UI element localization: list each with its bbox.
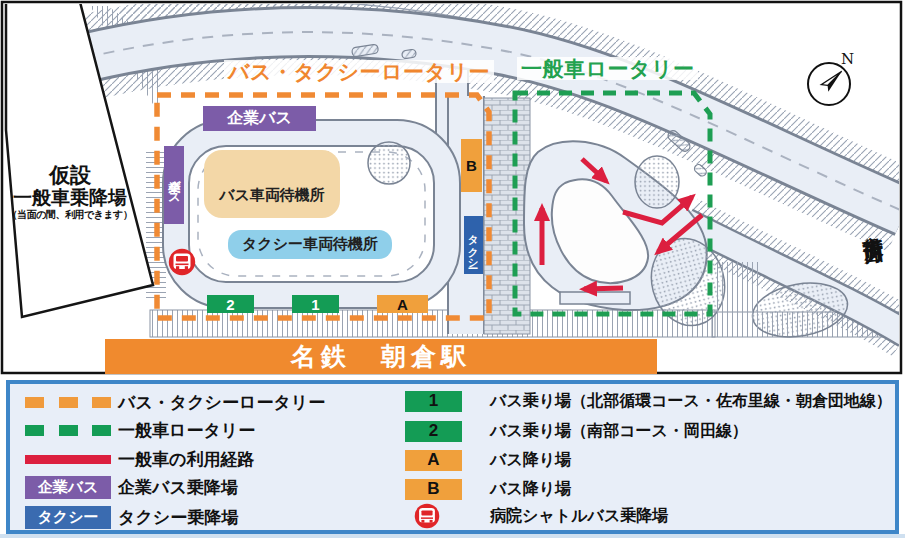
- legend-label: 一般車ロータリー: [118, 419, 255, 442]
- stop-b-marker: B: [405, 479, 462, 500]
- legend-label: バス降り場: [490, 479, 571, 500]
- corporate-bus-stop-side: 企業バス: [164, 146, 184, 224]
- bus-taxi-rotary-title: バス・タクシーロータリー: [224, 60, 494, 83]
- legend-label: 一般車の利用経路: [118, 448, 254, 471]
- legend-row-taxi: タクシー タクシー乗降場: [25, 505, 238, 529]
- bus-boarding-stop-1: 1: [292, 295, 339, 313]
- legend-row-corporate-bus: 企業バス 企業バス乗降場: [25, 475, 238, 499]
- hospital-shuttle-bus-icon: [168, 248, 196, 276]
- temp-stop-line2: 一般車乗降場: [0, 187, 140, 209]
- taxi-stop: タクシー: [464, 216, 483, 274]
- taxi-marker: タクシー: [25, 506, 111, 529]
- legend-row-hospital-shuttle: 病院シャトルバス乗降場: [414, 504, 668, 528]
- legend-label: 企業バス乗降場: [118, 476, 238, 499]
- stop-1-marker: 1: [405, 391, 462, 412]
- legend-row-boarding-1: 1 バス乗り場（北部循環コース・佐布里線・朝倉団地線）: [405, 389, 892, 413]
- red-line-marker: [25, 455, 111, 464]
- general-rotary-title: 一般車ロータリー: [517, 57, 698, 80]
- bus-boarding-stop-2: 2: [207, 295, 254, 313]
- corporate-bus-marker: 企業バス: [25, 476, 111, 499]
- bottom-strip: [0, 534, 905, 538]
- legend-row-bus-taxi-rotary: バス・タクシーロータリー: [25, 390, 325, 414]
- hospital-shuttle-bus-icon: [414, 503, 440, 529]
- compass-icon: [808, 63, 850, 105]
- stop-a-marker: A: [405, 450, 462, 471]
- legend-label: タクシー乗降場: [118, 506, 238, 529]
- temp-stop-line1: 仮設: [0, 163, 140, 187]
- legend-row-boarding-2: 2 バス乗り場（南部コース・岡田線）: [405, 419, 748, 443]
- legend-label: バス降り場: [490, 450, 571, 471]
- bus-alighting-stop-b: B: [461, 139, 482, 192]
- legend-label: 病院シャトルバス乗降場: [490, 506, 668, 527]
- compass-north-label: N: [841, 50, 854, 68]
- legend-label: バス乗り場（南部コース・岡田線）: [490, 421, 748, 442]
- legend-row-alighting-a: A バス降り場: [405, 448, 571, 472]
- bus-vehicle-waiting-area: バス車両待機所: [204, 150, 340, 218]
- temp-stop-note: （当面の間、利用できます）: [0, 209, 140, 221]
- orange-dash-marker: [25, 397, 111, 408]
- station-rotary-map-page: バス・タクシーロータリー 一般車ロータリー 仮設 一般車乗降場 （当面の間、利用…: [0, 0, 905, 538]
- legend-row-general-rotary: 一般車ロータリー: [25, 418, 255, 442]
- legend-row-general-route: 一般車の利用経路: [25, 447, 254, 471]
- legend-label: バス・タクシーロータリー: [118, 391, 325, 414]
- legend-row-alighting-b: B バス降り場: [405, 477, 571, 501]
- green-dash-marker: [25, 425, 111, 436]
- bus-alighting-stop-a: A: [377, 295, 428, 313]
- temporary-general-car-stop-label: 仮設 一般車乗降場 （当面の間、利用できます）: [0, 163, 140, 220]
- taxi-vehicle-waiting-area: タクシー車両待機所: [228, 230, 392, 259]
- station-name: 名鉄 朝倉駅: [291, 340, 471, 373]
- legend-label: バス乗り場（北部循環コース・佐布里線・朝倉団地線）: [490, 391, 892, 412]
- stop-2-marker: 2: [405, 421, 462, 442]
- station-bar: 名鉄 朝倉駅: [105, 339, 657, 374]
- corporate-bus-stop-top: 企業バス: [203, 106, 316, 131]
